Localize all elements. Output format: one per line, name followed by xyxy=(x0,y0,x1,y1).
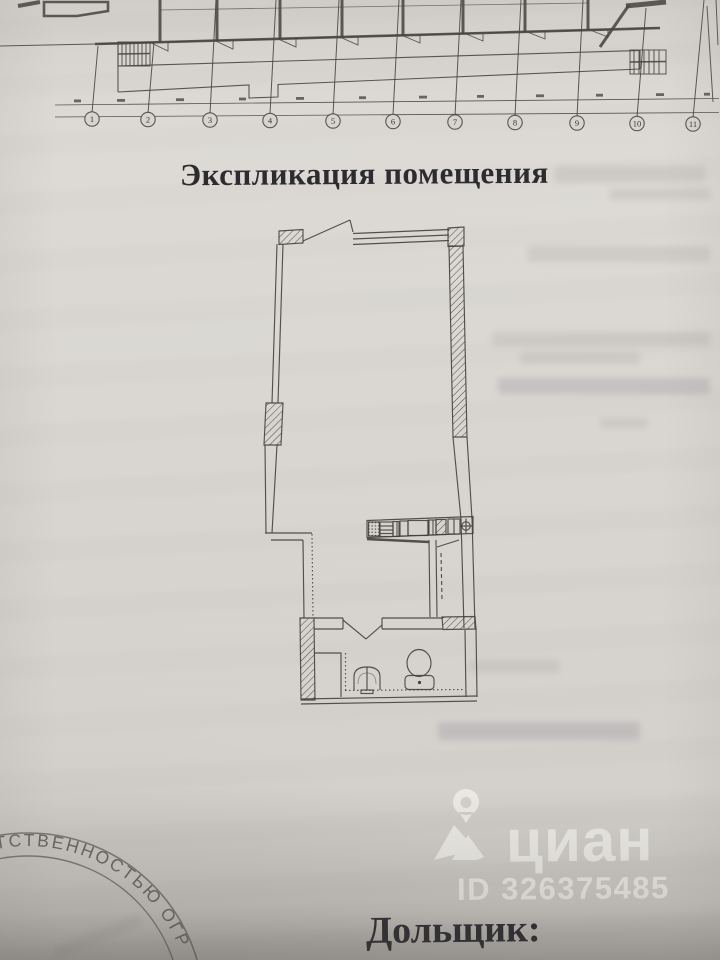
wall-block xyxy=(442,617,476,630)
corner-column xyxy=(448,227,464,247)
page-title: Экспликация помещения xyxy=(180,155,550,194)
balcony-door-swing xyxy=(303,220,353,241)
stairs-icon xyxy=(630,50,666,74)
bathroom-door-swing xyxy=(343,620,382,639)
axis-number: 9 xyxy=(575,118,579,128)
axis-number: 6 xyxy=(391,117,395,127)
toilet-symbol xyxy=(405,650,434,690)
stairs-icon xyxy=(118,42,150,66)
cian-id-text: ID 326375485 xyxy=(457,870,670,908)
unit-front-wall xyxy=(95,28,660,44)
stamp-seal: ТСТВЕННОСТЬЮ ОГР xyxy=(0,830,204,960)
wall-block xyxy=(279,230,303,245)
dolshik-label: Дольщик: xyxy=(366,907,541,953)
axis-number: 1 xyxy=(90,114,94,124)
roofs-icon xyxy=(434,825,484,860)
axis-number: 8 xyxy=(513,118,517,128)
left-wall-hatched xyxy=(264,403,283,445)
dimension-figures xyxy=(74,93,710,103)
partition-with-door xyxy=(429,540,459,617)
window-triple-line xyxy=(353,230,449,245)
right-wall-hatched xyxy=(449,246,467,437)
balcony-walkway xyxy=(118,44,640,98)
wall-step xyxy=(265,533,313,618)
axis-circles: 1 2 3 4 5 6 7 8 9 10 11 xyxy=(85,112,700,131)
unit-floor-plan xyxy=(264,220,477,704)
cabinet-outline xyxy=(314,653,341,697)
kitchen-counter xyxy=(367,517,473,543)
axis-number: 11 xyxy=(689,119,697,129)
washbasin-symbol xyxy=(354,667,380,694)
axis-number: 2 xyxy=(146,115,150,125)
axis-number: 10 xyxy=(633,119,642,129)
pin-icon xyxy=(453,789,479,823)
dimension-lines xyxy=(55,99,719,118)
axis-number: 5 xyxy=(331,116,335,126)
cian-logo-text: циан xyxy=(506,805,654,875)
stamp-arc-text: ТСТВЕННОСТЬЮ ОГР xyxy=(0,830,195,951)
axis-number: 3 xyxy=(208,115,212,125)
building-plan: 1 2 3 4 5 6 7 8 9 10 11 xyxy=(0,0,719,131)
bathroom xyxy=(300,617,477,705)
axis-number: 7 xyxy=(453,117,457,127)
bathroom-left-wall xyxy=(300,618,315,700)
svg-text:ТСТВЕННОСТЬЮ ОГР: ТСТВЕННОСТЬЮ ОГР xyxy=(0,830,195,951)
